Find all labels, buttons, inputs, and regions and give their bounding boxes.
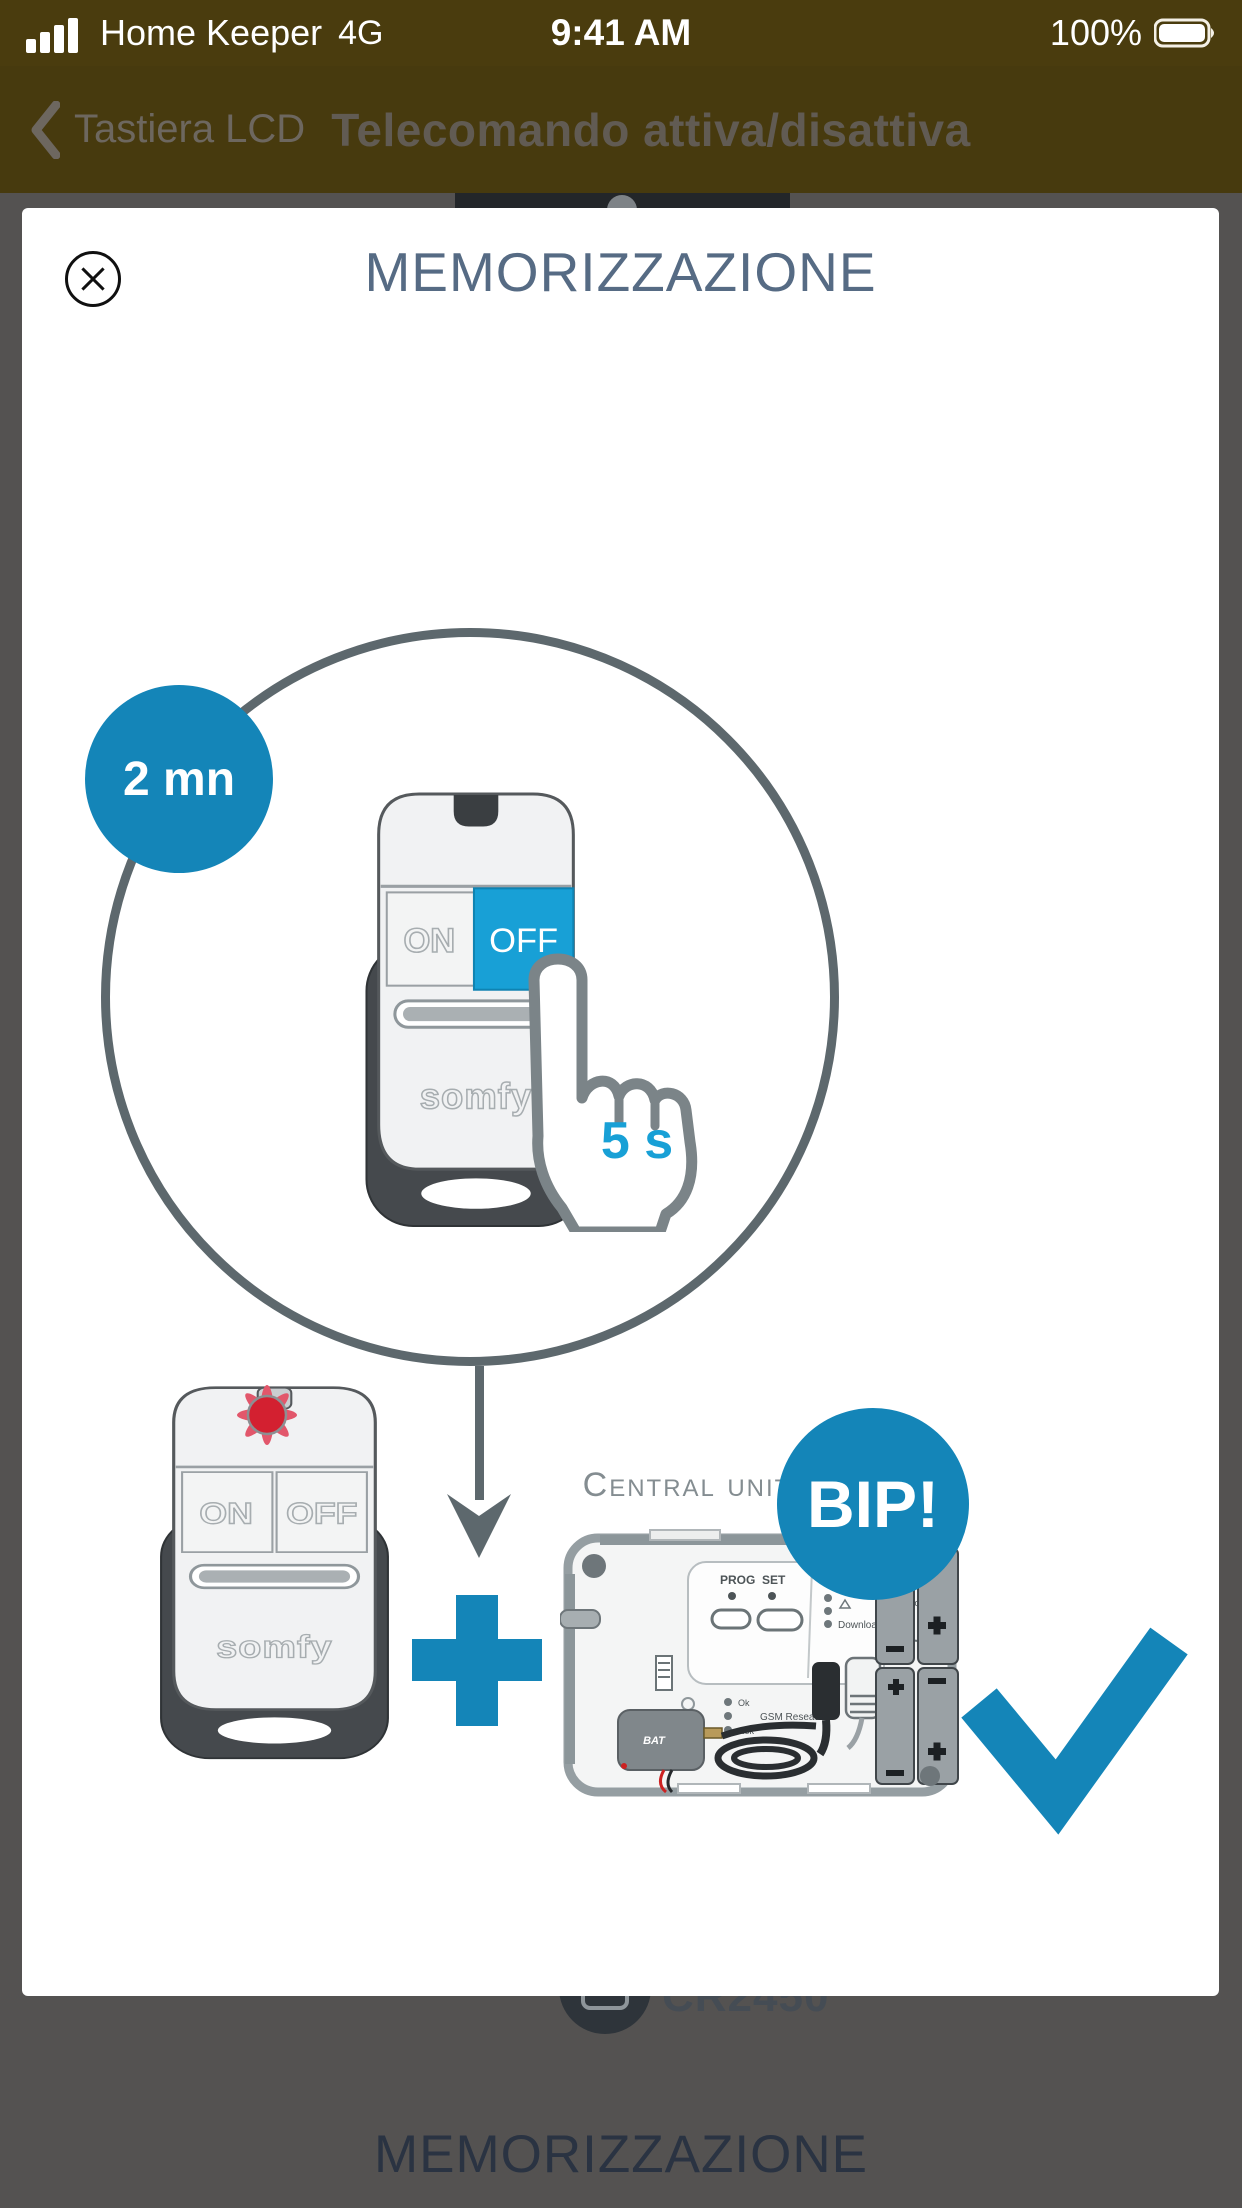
panel-ok-label: Ok (738, 1698, 750, 1708)
status-right-cluster: 100% (1050, 0, 1220, 66)
background-keypad-top (455, 193, 790, 209)
panel-set-label: SET (762, 1573, 786, 1587)
off-button-label: OFF (286, 1496, 357, 1529)
plus-icon (412, 1595, 542, 1726)
timer-badge: 2 mn (85, 685, 273, 873)
keypad-notch (607, 195, 637, 209)
page-title: Telecomando attiva/disattiva (331, 103, 970, 157)
status-bar: Home Keeper 4G 9:41 AM 100% (0, 0, 1242, 66)
on-button-label: ON (199, 1496, 253, 1529)
battery-icon (1154, 17, 1220, 49)
bip-badge: BIP! (777, 1408, 969, 1600)
back-chevron-icon (30, 101, 60, 159)
panel-gsm-label: GSM Reseau (760, 1712, 820, 1723)
arrow-down-line (475, 1366, 484, 1500)
on-button-label: ON (404, 922, 456, 960)
panel-prog-label: PROG (720, 1573, 755, 1587)
check-icon (957, 1619, 1190, 1838)
led-star-icon (207, 1355, 327, 1475)
hold-duration-label: 5 s (562, 1111, 712, 1171)
back-button[interactable]: Tastiera LCD (30, 101, 305, 159)
nav-bar: Tastiera LCD Telecomando attiva/disattiv… (0, 66, 1242, 193)
back-button-label: Tastiera LCD (74, 107, 305, 152)
panel-bat-label: BAT (643, 1735, 666, 1747)
modal-title: MEMORIZZAZIONE (22, 240, 1219, 304)
brand-logo: somfy (216, 1630, 333, 1664)
arrow-down-icon (443, 1490, 515, 1564)
hand-press-icon (500, 946, 706, 1232)
background-section-title: MEMORIZZAZIONE (0, 2124, 1242, 2185)
dimmed-background-strip (0, 193, 1242, 209)
battery-percent: 100% (1050, 12, 1142, 54)
memorization-modal: MEMORIZZAZIONE 2 mn ON OFF somfy 5 s (22, 208, 1219, 1996)
